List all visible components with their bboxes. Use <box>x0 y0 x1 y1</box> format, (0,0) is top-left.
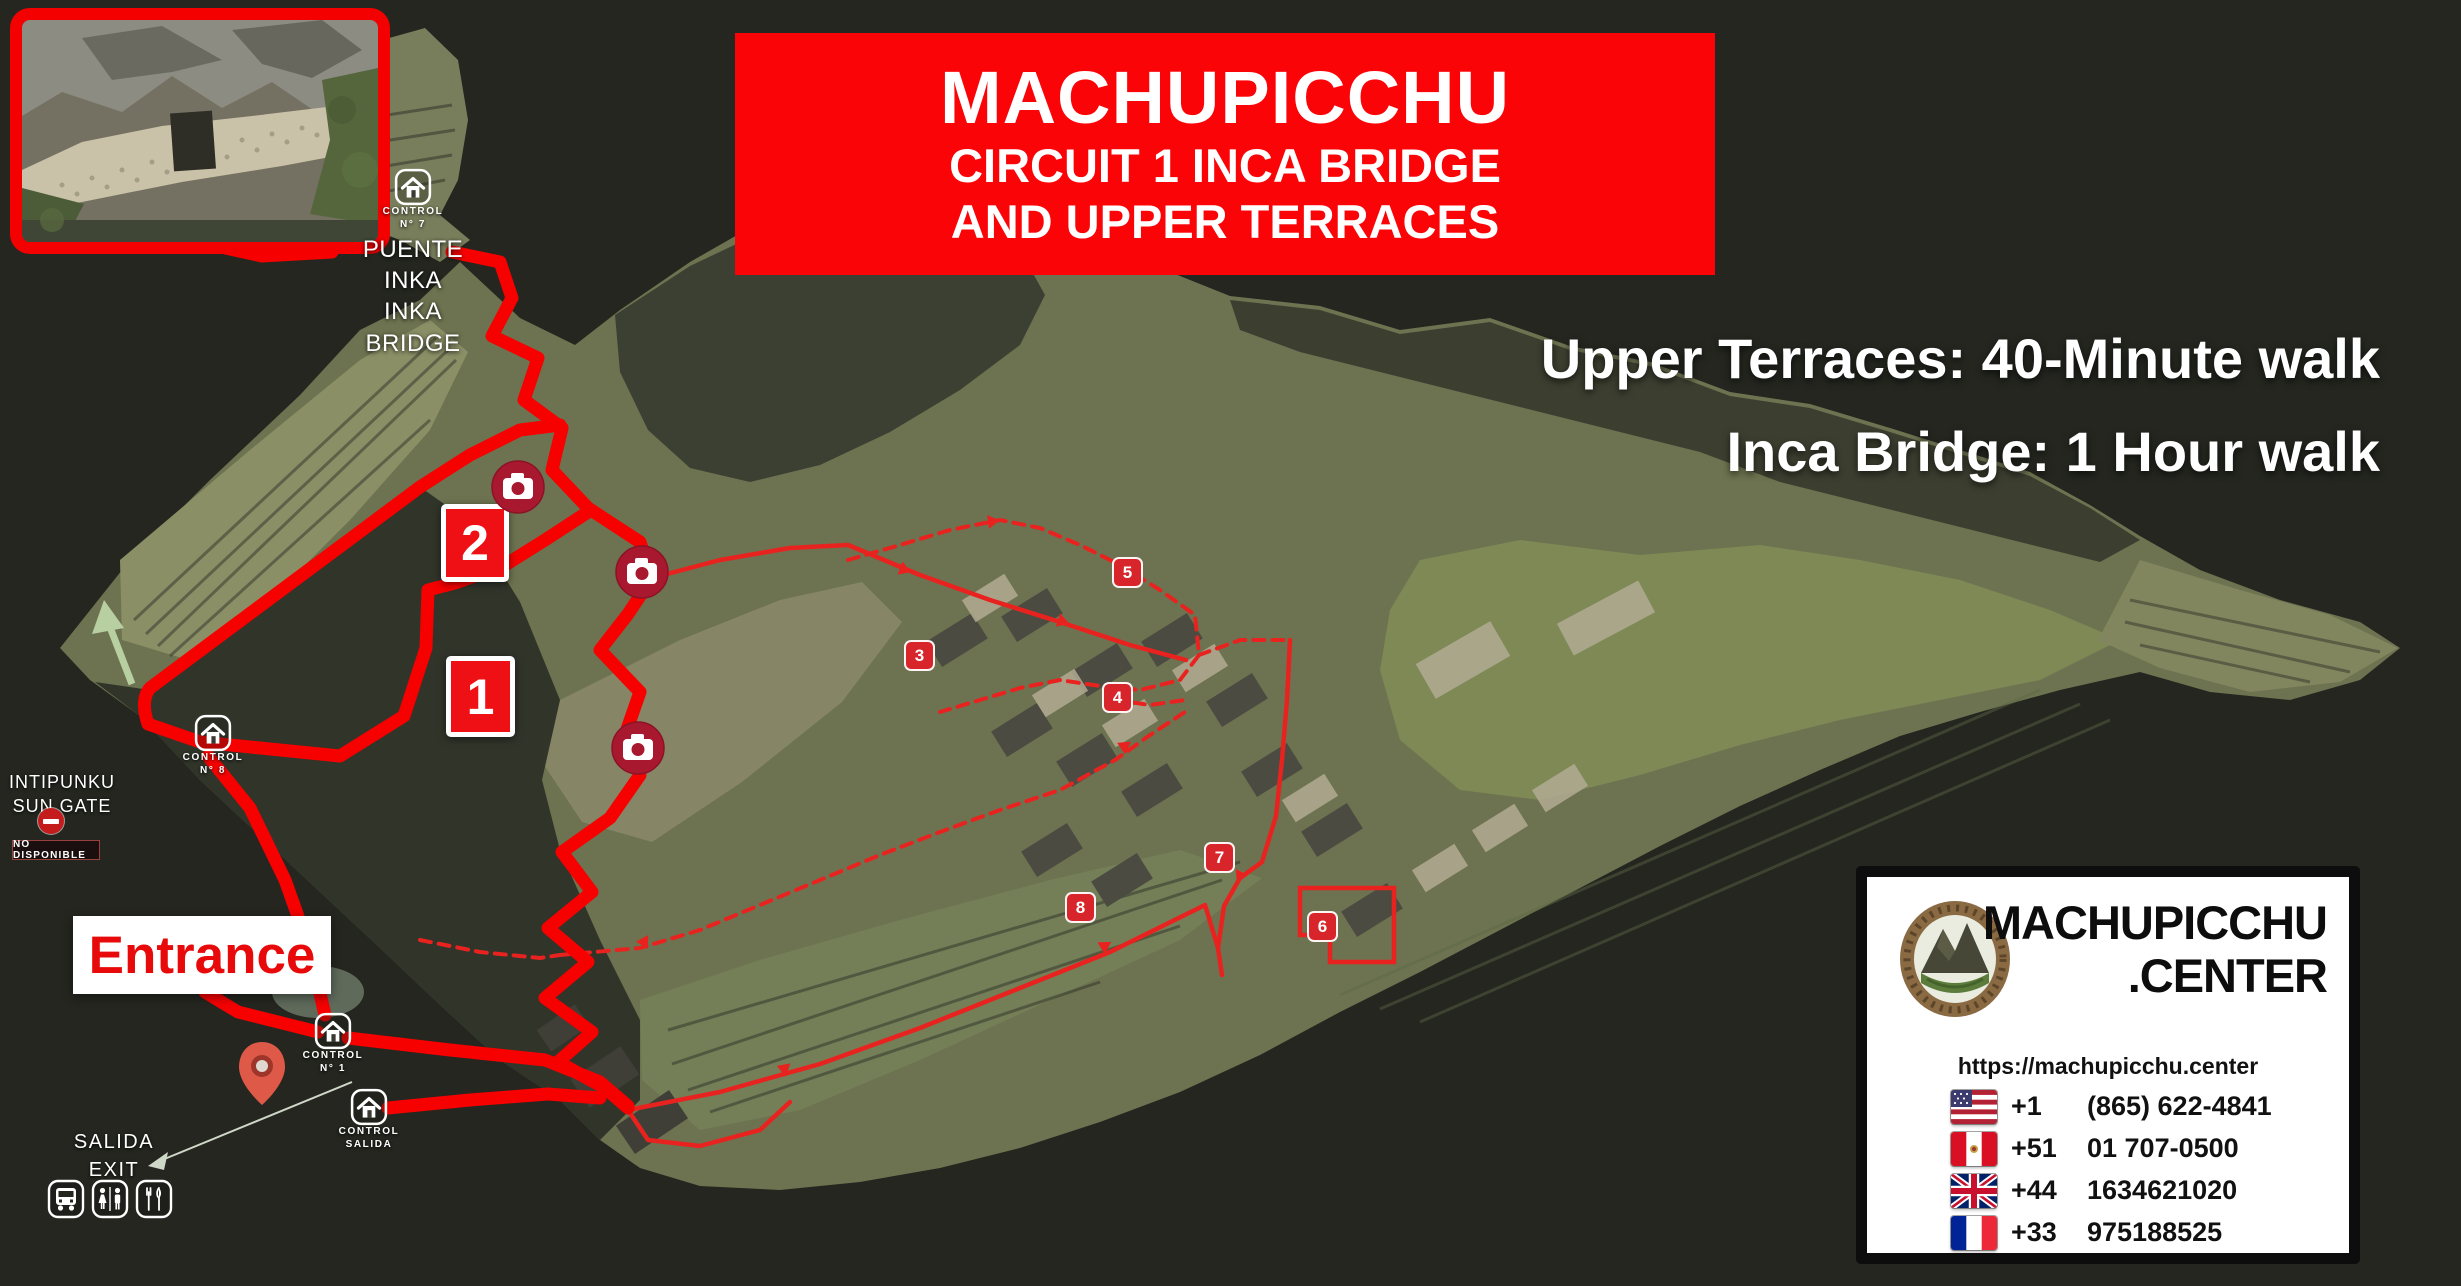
phone-code: +33 <box>2011 1217 2073 1248</box>
phone-row-peru[interactable]: +51 01 707-0500 <box>1951 1129 2272 1168</box>
stop-number: 1 <box>467 668 495 726</box>
france-flag-icon <box>1951 1216 1997 1250</box>
control-caption: CONTROL <box>383 206 444 219</box>
phone-number: 01 707-0500 <box>2087 1133 2239 1164</box>
bridge-label-es: PUENTE INKA <box>353 234 473 296</box>
stop-number: 2 <box>461 514 489 572</box>
stop-marker-5: 5 <box>1112 557 1143 588</box>
sun-gate-status-badge: NO DISPONIBLE <box>12 840 100 860</box>
map-pin-icon <box>236 1040 288 1108</box>
stop-number: 5 <box>1123 563 1132 583</box>
exit-label-es: SALIDA <box>56 1128 172 1156</box>
phone-row-uk[interactable]: +44 1634621020 <box>1951 1171 2272 1210</box>
map-subtitle-1: CIRCUIT 1 INCA BRIDGE <box>949 141 1501 191</box>
stop-number: 7 <box>1215 848 1224 868</box>
bus-icon <box>47 1178 85 1220</box>
inca-bridge-duration: Inca Bridge: 1 Hour walk <box>1100 405 2380 498</box>
control-point-salida: CONTROL SALIDA <box>309 1088 429 1151</box>
map-subtitle-2: AND UPPER TERRACES <box>951 197 1499 247</box>
control-number: N° 1 <box>320 1063 346 1076</box>
machupicchu-circuit-map: MACHUPICCHU CIRCUIT 1 INCA BRIDGE AND UP… <box>0 0 2461 1286</box>
inca-bridge-photo-illustration <box>22 20 378 242</box>
house-icon <box>350 1088 388 1126</box>
exit-label: SALIDA EXIT <box>56 1128 172 1184</box>
upper-terraces-duration: Upper Terraces: 40-Minute walk <box>1100 312 2380 405</box>
brand-name: MACHUPICCHU .CENTER <box>1983 897 2327 1002</box>
stop-marker-3: 3 <box>904 640 935 671</box>
entrance-label-box: Entrance <box>73 916 331 994</box>
sun-gate-es: INTIPUNKU <box>0 770 124 794</box>
phone-number: (865) 622-4841 <box>2087 1091 2272 1122</box>
stop-marker-4: 4 <box>1102 682 1133 713</box>
phone-list: +1 (865) 622-4841 +51 01 707-0500 <box>1951 1087 2272 1252</box>
peru-flag-icon <box>1951 1132 1997 1166</box>
title-banner: MACHUPICCHU CIRCUIT 1 INCA BRIDGE AND UP… <box>735 33 1715 275</box>
photo-spot-camera-icon <box>615 545 669 599</box>
us-flag-icon <box>1951 1090 1997 1124</box>
stop-marker-8: 8 <box>1065 892 1096 923</box>
stop-number: 8 <box>1076 898 1085 918</box>
inca-bridge-inset-photo <box>10 8 390 254</box>
facilities-icons <box>47 1178 173 1220</box>
control-caption: CONTROL <box>339 1126 400 1139</box>
phone-code: +51 <box>2011 1133 2073 1164</box>
stop-number: 3 <box>915 646 924 666</box>
stop-marker-6: 6 <box>1307 911 1338 942</box>
phone-row-france[interactable]: +33 975188525 <box>1951 1213 2272 1252</box>
uk-flag-icon <box>1951 1174 1997 1208</box>
control-caption: CONTROL <box>183 752 244 765</box>
photo-spot-camera-icon <box>491 460 545 514</box>
phone-row-us[interactable]: +1 (865) 622-4841 <box>1951 1087 2272 1126</box>
control-number: SALIDA <box>346 1139 393 1152</box>
no-entry-icon <box>38 808 64 834</box>
contact-card: MACHUPICCHU .CENTER https://machupicchu.… <box>1856 866 2360 1264</box>
website-url[interactable]: https://machupicchu.center <box>1867 1053 2349 1080</box>
sun-gate-label: INTIPUNKU SUN GATE <box>0 770 124 819</box>
map-title: MACHUPICCHU <box>940 61 1510 135</box>
phone-number: 975188525 <box>2087 1217 2222 1248</box>
walk-duration-info: Upper Terraces: 40-Minute walk Inca Brid… <box>1100 312 2380 498</box>
control-number: N° 8 <box>200 765 226 778</box>
restroom-icon <box>91 1178 129 1220</box>
bridge-label-en: INKA BRIDGE <box>353 296 473 358</box>
restaurant-icon <box>135 1178 173 1220</box>
entrance-label: Entrance <box>89 925 316 986</box>
control-point-1: CONTROL N° 1 <box>273 1012 393 1075</box>
stop-marker-2: 2 <box>441 504 509 582</box>
phone-number: 1634621020 <box>2087 1175 2237 1206</box>
house-icon <box>194 714 232 752</box>
photo-spot-camera-icon <box>611 721 665 775</box>
phone-code: +1 <box>2011 1091 2073 1122</box>
control-caption: CONTROL <box>303 1050 364 1063</box>
stop-number: 6 <box>1318 917 1327 937</box>
stop-marker-7: 7 <box>1204 842 1235 873</box>
brand-line-2: .CENTER <box>1983 950 2327 1003</box>
phone-code: +44 <box>2011 1175 2073 1206</box>
control-point-8: CONTROL N° 8 <box>153 714 273 777</box>
house-icon <box>314 1012 352 1050</box>
stop-number: 4 <box>1113 688 1122 708</box>
control-number: N° 7 <box>400 219 426 232</box>
control-point-7: CONTROL N° 7 PUENTE INKA INKA BRIDGE <box>353 168 473 359</box>
stop-marker-1: 1 <box>446 656 515 737</box>
house-icon <box>394 168 432 206</box>
brand-line-1: MACHUPICCHU <box>1983 897 2327 950</box>
